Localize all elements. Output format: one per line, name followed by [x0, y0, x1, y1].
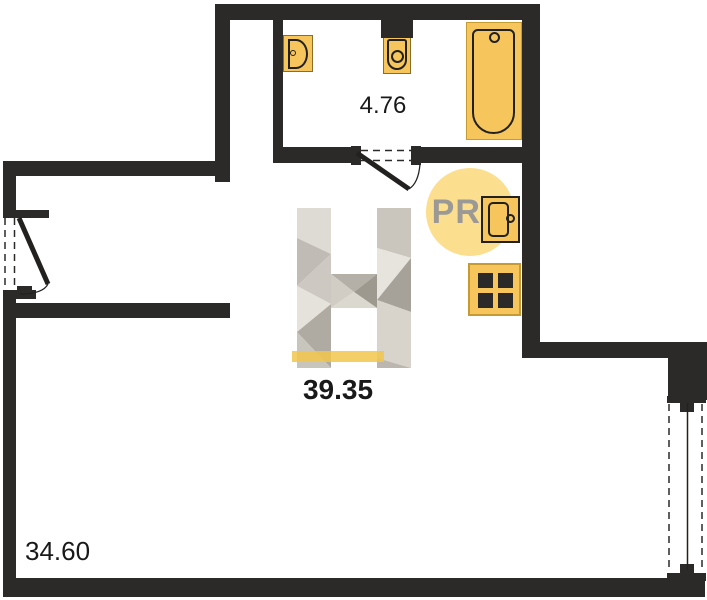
- stove-burner: [478, 273, 493, 288]
- wall-bathroom-bottom-right: [413, 147, 540, 163]
- toilet-drain: [391, 50, 404, 63]
- wall-upper-left-vertical: [215, 4, 230, 182]
- wall-shaft-inner: [273, 20, 283, 155]
- watermark-logo-icon: [297, 208, 411, 368]
- wall-right-pier: [668, 342, 707, 400]
- wall-partition: [3, 303, 230, 318]
- stove-burner: [478, 293, 493, 308]
- wall-right-upper-vertical: [522, 4, 540, 358]
- wall-step-horizontal: [522, 342, 670, 358]
- washbasin-icon: [283, 35, 313, 72]
- stove-burner: [498, 273, 513, 288]
- entry-door-icon: [3, 210, 49, 299]
- washbasin-faucet: [290, 50, 296, 56]
- bathtub-basin: [472, 29, 515, 134]
- wall-bottom: [3, 578, 705, 597]
- wall-hall-top: [3, 161, 230, 176]
- watermark-underline-bar: [292, 351, 384, 362]
- bathroom-area-label: 4.76: [350, 92, 416, 120]
- wall-left-upper: [3, 161, 16, 217]
- wall-left-lower: [3, 291, 16, 588]
- kitchen-sink-icon: [481, 196, 520, 243]
- bathtub-drain: [489, 32, 500, 43]
- toilet-icon: [383, 37, 411, 74]
- bathtub-icon: [466, 22, 522, 140]
- stove-burner: [498, 293, 513, 308]
- wall-top: [215, 4, 540, 20]
- bathroom-door-icon: [351, 146, 421, 189]
- total-area-label: 39.35: [288, 374, 388, 406]
- stove-icon: [468, 263, 521, 316]
- wall-bathroom-bottom-left: [273, 147, 355, 163]
- living-area-label: 34.60: [25, 536, 90, 567]
- kitchen-sink-drain: [506, 214, 515, 223]
- toilet-duct-block: [381, 20, 413, 38]
- window-icon: [667, 396, 706, 581]
- floor-plan: 4.76 39.35 34.60 PRO: [0, 0, 707, 600]
